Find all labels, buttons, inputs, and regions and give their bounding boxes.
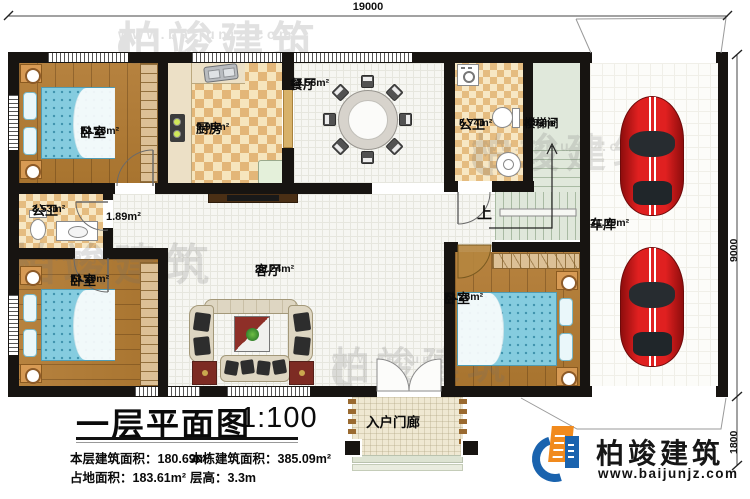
garage-door-flare	[576, 18, 726, 53]
entry-door-leaf	[409, 359, 441, 391]
stat-building-area: 本栋建筑面积：385.09m²	[190, 448, 331, 467]
title-underline-thin	[76, 442, 298, 443]
dimension-right-upper: 9000	[728, 202, 740, 262]
stat-footprint-area: 占地面积：183.61m²	[70, 467, 186, 486]
stat-storey-height: 层高：3.3m	[190, 467, 256, 486]
brand-logo: 柏竣建筑 www.baijunjz.com	[528, 420, 746, 494]
dimension-top: 19000	[8, 1, 728, 13]
title-underline	[76, 437, 298, 440]
brand-website: www.baijunjz.com	[598, 466, 739, 481]
floor-plan: 柏竣建筑www.baijunjz.com 柏竣建筑www.baijunjz.co…	[0, 0, 750, 499]
bedroom-door-leaf	[458, 245, 491, 278]
brand-logo-icon	[532, 424, 590, 488]
title-block: 一层平面图 1:100 本层建筑面积：180.69m² 本栋建筑面积：385.0…	[70, 398, 330, 493]
plan-scale: 1:100	[240, 402, 318, 435]
entry-door-leaf	[377, 359, 409, 391]
